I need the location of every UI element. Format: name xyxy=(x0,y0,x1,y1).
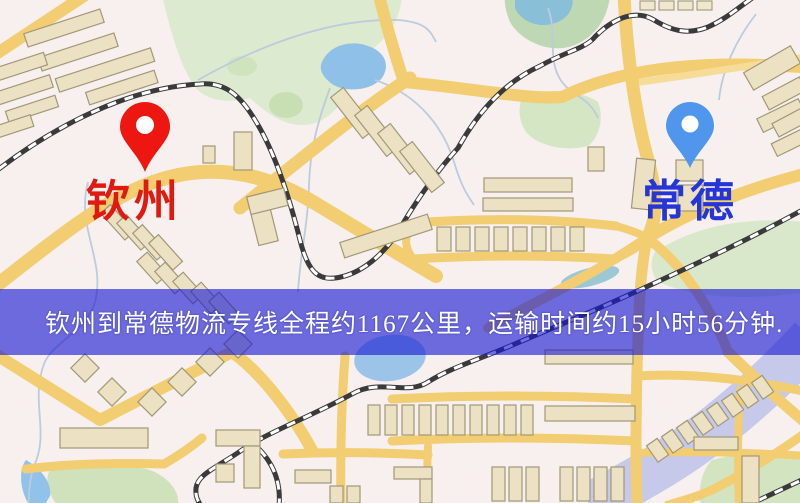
route-info-text: 钦州到常德物流专线全程约1167公里，运输时间约15小时56分钟. xyxy=(45,304,783,340)
map-image: 钦州 常德 xyxy=(0,0,800,503)
route-info-banner: 钦州到常德物流专线全程约1167公里，运输时间约15小时56分钟. xyxy=(0,289,800,355)
map-screenshot: 钦州 常德 钦州到常德物流专线全程约1167公里，运输时间约15小时56分钟. xyxy=(0,0,800,503)
destination-city-label: 常德 xyxy=(642,177,738,226)
origin-city-label: 钦州 xyxy=(86,177,182,226)
